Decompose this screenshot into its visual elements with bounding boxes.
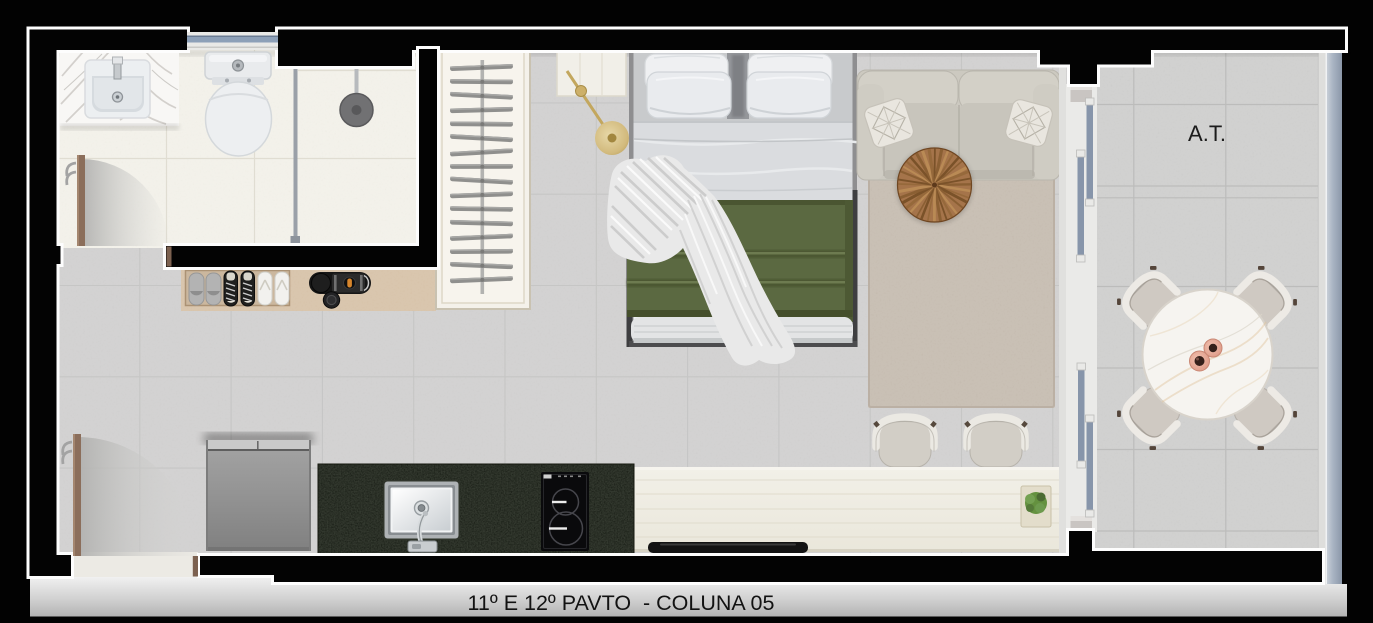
svg-text:11º E 12º PAVTO - COLUNA 05: 11º E 12º PAVTO - COLUNA 05 <box>468 591 775 615</box>
svg-text:A.T.: A.T. <box>1188 121 1226 146</box>
